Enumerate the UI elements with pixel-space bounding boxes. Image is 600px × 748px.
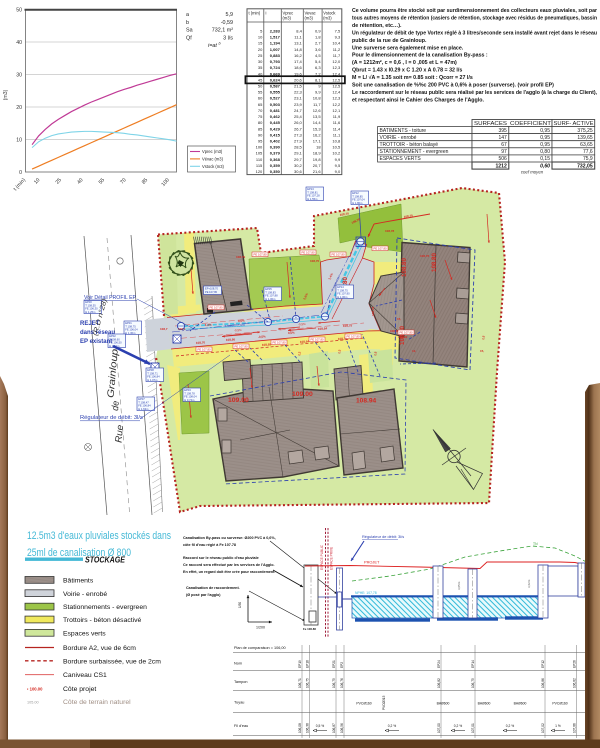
svg-text:public de la rue de Grainloup.: public de la rue de Grainloup.	[352, 38, 427, 44]
svg-text:Un régulateur de débit de type: Un régulateur de débit de type Vortex ré…	[352, 30, 597, 36]
svg-text:Caniveau CS1: Caniveau CS1	[63, 672, 107, 679]
svg-text:107,00: 107,00	[437, 723, 441, 733]
svg-text:1,8: 1,8	[315, 35, 321, 40]
svg-text:3,62m: 3,62m	[527, 579, 531, 588]
svg-text:29,1: 29,1	[294, 151, 303, 156]
svg-text:3,6: 3,6	[315, 47, 321, 52]
svg-text:21,6: 21,6	[313, 169, 322, 174]
svg-text:1 %: 1 %	[555, 724, 561, 728]
svg-text:b: b	[219, 42, 221, 46]
svg-text:18,9: 18,9	[313, 151, 322, 156]
svg-text:Une surverse sera également mi: Une surverse sera également mise en plac…	[352, 45, 464, 51]
svg-text:0,5 %: 0,5 %	[316, 724, 324, 728]
svg-text:106,75: 106,75	[332, 678, 336, 688]
svg-text:30: 30	[16, 72, 22, 78]
svg-text:0,527: 0,527	[270, 96, 281, 101]
svg-text:108,64: 108,64	[318, 326, 328, 331]
svg-text:30: 30	[258, 59, 263, 64]
svg-text:0,462: 0,462	[270, 114, 281, 119]
svg-text:Côte de terrain naturel: Côte de terrain naturel	[63, 699, 131, 706]
svg-text:1/50: 1/50	[238, 602, 242, 608]
svg-text:13,: 13,	[412, 349, 416, 353]
svg-text:65: 65	[258, 102, 263, 107]
svg-text:Fe 106.86: Fe 106.86	[303, 627, 316, 631]
svg-text:60: 60	[258, 96, 263, 101]
svg-text:Régulateur de débit: 3l/s: Régulateur de débit: 3l/s	[80, 415, 143, 421]
svg-text:7,5: 7,5	[335, 29, 341, 34]
svg-text:Rue: Rue	[114, 424, 127, 443]
svg-text:77,6: 77,6	[583, 149, 593, 155]
svg-text:0,555: 0,555	[270, 90, 281, 95]
svg-text:106,56: 106,56	[340, 723, 344, 733]
svg-text:0,60: 0,60	[540, 163, 550, 169]
svg-text:Qf: Qf	[186, 35, 192, 41]
svg-text:13,1: 13,1	[294, 41, 303, 46]
svg-text:9,9: 9,9	[315, 90, 321, 95]
svg-text:PE 107,80: PE 107,80	[198, 348, 212, 352]
svg-text:0,445: 0,445	[270, 120, 281, 125]
svg-text:Sa: Sa	[186, 28, 193, 34]
svg-text:18: 18	[316, 145, 321, 150]
svg-text:29,7: 29,7	[294, 157, 303, 162]
svg-text:110: 110	[256, 157, 263, 162]
svg-text:b: b	[186, 20, 189, 26]
svg-text:108,7: 108,7	[160, 327, 168, 331]
svg-text:20,6: 20,6	[294, 77, 303, 82]
svg-text:0,402: 0,402	[270, 138, 281, 143]
svg-text:PE 107,80: PE 107,80	[374, 247, 388, 251]
svg-text:10,4: 10,4	[332, 41, 341, 46]
svg-text:de: de	[110, 400, 122, 411]
svg-text:106,82: 106,82	[572, 678, 576, 688]
svg-text:10,2: 10,2	[332, 151, 341, 156]
svg-text:PE 107,80: PE 107,80	[302, 251, 316, 255]
svg-text:17,4: 17,4	[294, 59, 303, 64]
svg-text:9,0: 9,0	[335, 169, 341, 174]
svg-text:10,8: 10,8	[332, 138, 341, 143]
svg-text:12,0: 12,0	[332, 59, 341, 64]
svg-text:25,4: 25,4	[294, 114, 303, 119]
svg-text:40: 40	[16, 40, 22, 46]
svg-text:27,3: 27,3	[294, 132, 303, 137]
svg-text:1,517: 1,517	[270, 35, 281, 40]
svg-text:PVCØ160: PVCØ160	[356, 702, 371, 706]
svg-text:0,793: 0,793	[270, 59, 281, 64]
svg-text:H 1,30m: H 1,30m	[125, 331, 136, 335]
svg-text:1/200: 1/200	[256, 626, 265, 630]
svg-text:Nom: Nom	[234, 662, 242, 666]
svg-text:11,6: 11,6	[333, 120, 341, 125]
svg-text:Qbrut = 1.43 x I0.29 x C 1.20: Qbrut = 1.43 x I0.29 x C 1.20 x A 0.78 =…	[352, 68, 462, 74]
svg-text:Soit une canalisation de %%c 2: Soit une canalisation de %%c 200 PVC à 0…	[352, 83, 554, 89]
svg-text:STATIONNEMENT - evergreen: STATIONNEMENT - evergreen	[380, 149, 449, 155]
svg-text:VOIRIE - enrobé: VOIRIE - enrobé	[380, 135, 417, 141]
svg-text:11,7: 11,7	[333, 53, 341, 58]
svg-text:95: 95	[258, 138, 263, 143]
svg-text:24,7: 24,7	[294, 108, 303, 113]
svg-text:Vévac (m3): Vévac (m3)	[202, 156, 224, 161]
svg-text:BAØ600: BAØ600	[437, 702, 450, 706]
svg-text:108,70: 108,70	[196, 340, 206, 345]
svg-text:COEFFICIENT: COEFFICIENT	[510, 121, 552, 127]
svg-text:75: 75	[258, 114, 263, 119]
svg-text:732,1 m²: 732,1 m²	[212, 28, 233, 34]
svg-text:H 1,80m: H 1,80m	[352, 201, 363, 205]
svg-text:85: 85	[258, 126, 263, 131]
svg-text:15,: 15,	[480, 349, 484, 353]
svg-text:506: 506	[498, 156, 507, 162]
svg-text:BATIMENTS - toiture: BATIMENTS - toiture	[380, 128, 427, 134]
svg-text:108.80: 108.80	[401, 258, 408, 277]
svg-text:de rétention, etc…).: de rétention, etc…).	[352, 23, 402, 29]
svg-text:139,65: 139,65	[577, 135, 593, 141]
svg-text:PVCØ160: PVCØ160	[552, 702, 567, 706]
svg-text:20,7: 20,7	[313, 163, 322, 168]
svg-text:108,76: 108,76	[420, 254, 430, 258]
svg-text:15: 15	[258, 41, 263, 46]
svg-text:106,71: 106,71	[298, 678, 302, 688]
svg-text:18,6: 18,6	[294, 65, 303, 70]
svg-text:12,1: 12,1	[332, 108, 341, 113]
svg-text:107,02: 107,02	[541, 723, 545, 733]
svg-text:-0,5%: -0,5%	[298, 322, 306, 327]
svg-text:Le raccordement sur le réseau: Le raccordement sur le réseau public ser…	[352, 90, 598, 96]
svg-text:1212: 1212	[495, 163, 506, 169]
svg-text:108,75: 108,75	[343, 323, 353, 328]
svg-text:14,4: 14,4	[313, 120, 322, 125]
svg-text:120: 120	[256, 169, 263, 174]
svg-text:TROTTOIR - béton balayé: TROTTOIR - béton balayé	[380, 142, 439, 148]
svg-text:(m3): (m3)	[305, 16, 314, 21]
svg-text:1,4%: 1,4%	[205, 323, 212, 327]
svg-text:109.00: 109.00	[228, 397, 249, 404]
svg-text:9,3: 9,3	[335, 35, 341, 40]
svg-text:0,2 %: 0,2 %	[388, 724, 396, 728]
svg-text:12,5: 12,5	[332, 77, 341, 82]
svg-text:Bâtiments: Bâtiments	[63, 578, 94, 585]
svg-text:106,82: 106,82	[437, 678, 441, 688]
svg-text:1,007: 1,007	[270, 47, 281, 52]
svg-text:Côte projet: Côte projet	[63, 686, 96, 693]
svg-text:108,64: 108,64	[300, 339, 310, 344]
svg-text:1,194: 1,194	[270, 41, 281, 46]
svg-text:115: 115	[256, 163, 263, 168]
svg-text:Plan de comparaison = 106,00: Plan de comparaison = 106,00	[234, 646, 286, 650]
svg-text:0,481: 0,481	[270, 108, 281, 113]
svg-text:9,9: 9,9	[335, 157, 341, 162]
svg-text:(m3): (m3)	[323, 16, 332, 21]
svg-text:M = L/ √A = 1.35 soit m= 0.85: M = L/ √A = 1.35 soit m= 0.85 soit : Qco…	[352, 74, 473, 81]
svg-text:25: 25	[258, 53, 263, 58]
svg-text:tous autres moyens de rétentio: tous autres moyens de rétention (casiers…	[352, 15, 597, 21]
svg-text:30,2: 30,2	[294, 163, 303, 168]
svg-text:NPHE: 107,78: NPHE: 107,78	[355, 591, 377, 595]
svg-text:4,5: 4,5	[315, 53, 321, 58]
svg-text:35: 35	[258, 65, 263, 70]
svg-text:H 1,55m: H 1,55m	[307, 197, 318, 201]
svg-text:108,1: 108,1	[178, 327, 186, 331]
svg-text:0,379: 0,379	[270, 151, 281, 156]
svg-text:732,05: 732,05	[577, 163, 593, 169]
svg-text:EP26: EP26	[572, 660, 576, 668]
svg-text:10: 10	[16, 137, 22, 143]
svg-text:0,2 %: 0,2 %	[454, 724, 462, 728]
svg-text:Tampon: Tampon	[234, 680, 248, 684]
svg-text:20: 20	[258, 47, 263, 52]
svg-text:19,8: 19,8	[313, 157, 322, 162]
svg-text:12,3: 12,3	[332, 96, 341, 101]
svg-text:0,5%: 0,5%	[288, 331, 295, 335]
svg-text:108.94: 108.94	[356, 398, 377, 405]
svg-text:EP19: EP19	[298, 660, 302, 668]
svg-text:11,7: 11,7	[313, 102, 321, 107]
svg-text:105.00: 105.00	[27, 701, 39, 705]
svg-text:Ce raccord sera effectué par l: Ce raccord sera effectué par les service…	[183, 563, 274, 567]
svg-text:ESPACES VERTS: ESPACES VERTS	[380, 156, 422, 162]
svg-text:9,5: 9,5	[335, 163, 341, 168]
svg-text:11,1: 11,1	[333, 132, 341, 137]
svg-text:PE 107,80: PE 107,80	[332, 253, 346, 257]
svg-text:Fil d'eau: Fil d'eau	[234, 724, 248, 728]
svg-text:PE 107,80: PE 107,80	[235, 345, 249, 349]
svg-text:63,65: 63,65	[580, 142, 593, 148]
svg-text:108,94: 108,94	[398, 335, 408, 339]
svg-text:H 0,74m: H 0,74m	[184, 398, 195, 402]
svg-text:0,2 %: 0,2 %	[506, 724, 514, 728]
svg-text:-0,5%: -0,5%	[234, 328, 242, 333]
svg-text:109.00: 109.00	[292, 391, 313, 398]
svg-text:(m3): (m3)	[283, 16, 292, 21]
svg-text:Tuyau: Tuyau	[234, 701, 244, 705]
svg-text:106,38: 106,38	[305, 723, 309, 733]
svg-text:27,9: 27,9	[294, 138, 303, 143]
svg-text:50: 50	[16, 7, 22, 13]
svg-text:30,6: 30,6	[294, 169, 303, 174]
svg-text:Canalisation By-pass ou surver: Canalisation By-pass ou surverse: Ø200 P…	[183, 536, 276, 540]
svg-text:t (min): t (min)	[249, 11, 261, 16]
svg-text:-0,5%: -0,5%	[258, 334, 266, 339]
svg-text:(Ø posé par l'agglo): (Ø posé par l'agglo)	[186, 593, 221, 597]
svg-text:PE 107,80: PE 107,80	[347, 335, 361, 339]
svg-text:106,75: 106,75	[305, 678, 309, 688]
svg-text:16,2: 16,2	[313, 132, 322, 137]
svg-text:106,87: 106,87	[332, 723, 336, 733]
svg-text:108,66: 108,66	[226, 337, 236, 342]
svg-text:2,7: 2,7	[315, 41, 321, 46]
svg-text:11,9: 11,9	[333, 114, 341, 119]
svg-text:0,9: 0,9	[315, 29, 321, 34]
svg-text:EP24: EP24	[437, 660, 441, 668]
svg-text:108,79: 108,79	[236, 255, 246, 259]
svg-text:PE 107,80: PE 107,80	[205, 290, 218, 294]
svg-text:15,: 15,	[397, 317, 401, 321]
svg-text:0,883: 0,883	[270, 53, 281, 58]
svg-text:-0,59: -0,59	[221, 20, 233, 26]
svg-text:106,76: 106,76	[340, 678, 344, 688]
svg-text:a: a	[186, 12, 189, 18]
svg-text:0,390: 0,390	[270, 145, 281, 150]
svg-text:0,415: 0,415	[270, 132, 281, 137]
svg-text:TN: TN	[533, 542, 538, 546]
svg-text:8,4: 8,4	[296, 29, 302, 34]
svg-text:17,1: 17,1	[313, 138, 322, 143]
svg-text:H 1,25m: H 1,25m	[85, 310, 96, 314]
svg-text:H 1,63m: H 1,63m	[138, 407, 149, 411]
svg-text:(m3): (m3)	[3, 89, 9, 100]
svg-text:23,9: 23,9	[294, 102, 303, 107]
svg-text:(A = 1212m², c = 0,6 , I = 0 ,: (A = 1212m², c = 0,6 , I = 0 ,005 et L =…	[352, 60, 457, 66]
svg-text:6,3: 6,3	[315, 65, 321, 70]
svg-text:16,2: 16,2	[294, 53, 303, 58]
svg-text:5,4: 5,4	[315, 59, 321, 64]
svg-text:55: 55	[258, 90, 263, 95]
svg-text:EP21: EP21	[332, 660, 336, 668]
svg-text:SURFACES: SURFACES	[474, 121, 508, 127]
svg-text:Canalisation de raccordement.: Canalisation de raccordement.	[186, 586, 240, 590]
svg-text:0,429: 0,429	[270, 126, 281, 131]
svg-text:Bordure surbaissée, vue de 2cm: Bordure surbaissée, vue de 2cm	[63, 658, 161, 665]
svg-text:▪ 100.00: ▪ 100.00	[27, 686, 43, 691]
svg-text:Pour le dimensionnement de la: Pour le dimensionnement de la canalisati…	[352, 53, 488, 59]
svg-text:106,08: 106,08	[298, 723, 302, 733]
svg-text:STOCKAGE: STOCKAGE	[85, 556, 126, 565]
svg-text:0,95: 0,95	[540, 128, 550, 134]
svg-text:105: 105	[256, 151, 263, 156]
svg-text:108,78: 108,78	[385, 229, 395, 233]
svg-text:0,5%: 0,5%	[238, 319, 245, 323]
svg-text:0: 0	[19, 170, 22, 176]
svg-text:H 1,00m: H 1,00m	[265, 297, 276, 301]
svg-text:Espaces verts: Espaces verts	[63, 630, 106, 637]
svg-text:375,25: 375,25	[577, 128, 593, 134]
svg-text:10,8: 10,8	[313, 96, 322, 101]
svg-text:26,0: 26,0	[294, 120, 303, 125]
svg-text:0,624: 0,624	[270, 77, 281, 82]
svg-text:0,15: 0,15	[540, 156, 550, 162]
svg-text:Vstock (m3): Vstock (m3)	[202, 164, 224, 169]
svg-text:Régulateur de débit: 3l/s: Régulateur de débit: 3l/s	[362, 534, 404, 539]
svg-text:11,1: 11,1	[294, 35, 302, 40]
svg-text:0,95: 0,95	[540, 135, 550, 141]
svg-text:PE 107,80: PE 107,80	[273, 341, 287, 345]
svg-text:14,8: 14,8	[294, 47, 303, 52]
svg-text:8,1: 8,1	[315, 77, 321, 82]
svg-text:12,4: 12,4	[332, 90, 341, 95]
svg-text:3,05m: 3,05m	[457, 581, 461, 590]
svg-text:Vprec (m3): Vprec (m3)	[202, 149, 223, 154]
svg-text:108,69: 108,69	[262, 342, 272, 347]
svg-text:Ce volume pourra être stocké s: Ce volume pourra être stocké soit par su…	[352, 8, 597, 14]
svg-text:12,6: 12,6	[313, 108, 322, 113]
svg-text:PROJET: PROJET	[364, 560, 380, 565]
svg-text:2,283: 2,283	[270, 29, 281, 34]
svg-text:23,1: 23,1	[294, 96, 303, 101]
svg-text:En effet, un regard doit être: En effet, un regard doit être crée pour …	[183, 570, 275, 574]
svg-text:0,95: 0,95	[540, 142, 550, 148]
svg-text:EP2: EP2	[340, 662, 344, 668]
svg-text:PVCØ315: PVCØ315	[382, 695, 386, 710]
svg-text:147: 147	[498, 135, 507, 141]
svg-text:11,4: 11,4	[333, 126, 341, 131]
svg-text:15,3: 15,3	[313, 126, 322, 131]
svg-text:Voir Détail PROFIL EP: Voir Détail PROFIL EP	[84, 295, 137, 301]
svg-text:28,5: 28,5	[294, 145, 303, 150]
svg-text:12.5m3 d'eaux pluviales stocké: 12.5m3 d'eaux pluviales stockés dans	[27, 530, 171, 542]
svg-text:Bordure A2, vue de 6cm: Bordure A2, vue de 6cm	[63, 645, 136, 652]
svg-text:97: 97	[501, 149, 507, 155]
svg-text:12,2: 12,2	[332, 102, 341, 107]
svg-text:BAØ600: BAØ600	[478, 702, 491, 706]
svg-text:ESPACE PRIVE: ESPACE PRIVE	[330, 547, 334, 570]
svg-text:PE 107,80: PE 107,80	[311, 338, 325, 342]
svg-text:i: i	[266, 11, 267, 16]
svg-text:10: 10	[258, 35, 263, 40]
svg-text:PE 107,80: PE 107,80	[400, 331, 414, 335]
svg-text:108,78: 108,78	[371, 306, 375, 316]
svg-text:SURF- ACTIVE: SURF- ACTIVE	[554, 121, 595, 127]
svg-text:PE 107,80: PE 107,80	[210, 306, 224, 310]
svg-text:0,359: 0,359	[270, 163, 281, 168]
svg-text:coef moyen: coef moyen	[521, 170, 544, 175]
svg-text:106,75: 106,75	[471, 678, 475, 688]
svg-text:45: 45	[258, 77, 263, 82]
svg-text:67: 67	[501, 142, 507, 148]
svg-text:20: 20	[16, 105, 22, 111]
svg-text:Voirie - enrobé: Voirie - enrobé	[63, 591, 107, 598]
svg-text:H 1,00m: H 1,00m	[337, 295, 348, 299]
svg-text:75,9: 75,9	[583, 156, 593, 162]
svg-text:0,80: 0,80	[540, 149, 550, 155]
svg-text:0,724: 0,724	[270, 65, 281, 70]
svg-text:107,86: 107,86	[572, 723, 576, 733]
svg-text:0,350: 0,350	[270, 169, 281, 174]
svg-text:0,503: 0,503	[270, 102, 281, 107]
svg-text:12,3: 12,3	[332, 65, 341, 70]
svg-text:26,7: 26,7	[294, 126, 303, 131]
svg-text:EP12: EP12	[541, 660, 545, 668]
svg-text:100: 100	[256, 145, 263, 150]
svg-text:EP14: EP14	[471, 660, 475, 668]
svg-text:PE 107,80: PE 107,80	[254, 253, 268, 257]
svg-text:10,5: 10,5	[332, 145, 341, 150]
svg-text:et respectant ainsi le Cahier: et respectant ainsi le Cahier des Charge…	[352, 97, 484, 103]
svg-text:EP18: EP18	[305, 660, 309, 668]
svg-text:3 l/s: 3 l/s	[223, 35, 233, 41]
svg-text:côte fil d'eau réglé à Fe 107.: côte fil d'eau réglé à Fe 107.78	[183, 543, 236, 547]
svg-text:Stationnements - evergreen: Stationnements - evergreen	[63, 604, 147, 611]
svg-text:106,86: 106,86	[541, 678, 545, 688]
svg-text:108,70: 108,70	[310, 259, 320, 263]
svg-text:107,01: 107,01	[471, 723, 475, 733]
svg-text:Raccord sur le réseau public d: Raccord sur le réseau public d'eau pluvi…	[183, 556, 259, 560]
svg-text:80: 80	[258, 120, 263, 125]
svg-text:H 1,07m: H 1,07m	[147, 378, 158, 382]
svg-text:5,9: 5,9	[226, 12, 234, 18]
svg-text:0,368: 0,368	[270, 157, 281, 162]
svg-text:11,2: 11,2	[333, 47, 341, 52]
svg-text:90: 90	[258, 132, 263, 137]
svg-text:395: 395	[498, 128, 507, 134]
svg-text:13,5: 13,5	[313, 114, 322, 119]
svg-text:108.80: 108.80	[431, 253, 438, 272]
svg-text:22,3: 22,3	[294, 90, 303, 95]
svg-text:BAØ600: BAØ600	[514, 702, 527, 706]
svg-text:i=at: i=at	[208, 43, 217, 49]
svg-text:70: 70	[258, 108, 263, 113]
svg-text:EP existant: EP existant	[80, 339, 112, 345]
svg-text:Trottoirs - béton désactivé: Trottoirs - béton désactivé	[63, 617, 142, 624]
